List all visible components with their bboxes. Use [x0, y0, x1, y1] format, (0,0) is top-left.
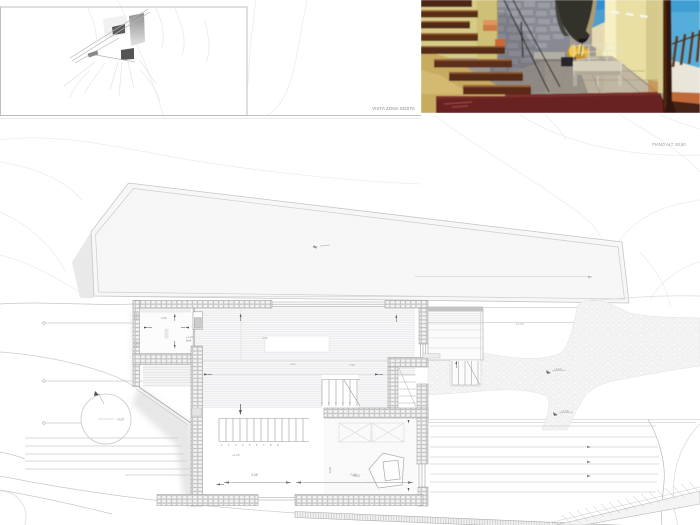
- svg-text:B+B: B+B: [186, 339, 191, 343]
- svg-text:3,05: 3,05: [251, 473, 258, 477]
- svg-text:0,30: 0,30: [328, 467, 332, 473]
- svg-text:+1,60: +1,60: [561, 409, 569, 413]
- svg-text:VISTA ZONA SOSTA: VISTA ZONA SOSTA: [372, 106, 416, 111]
- svg-text:7,04: 7,04: [349, 363, 355, 367]
- svg-text:13,05: 13,05: [516, 322, 524, 326]
- svg-text:7,04: 7,04: [350, 473, 357, 477]
- svg-text:sala: sala: [290, 362, 296, 366]
- svg-text:+3,20: +3,20: [116, 418, 124, 422]
- svg-text:2,95: 2,95: [161, 316, 167, 320]
- svg-text:+3,20: +3,20: [554, 367, 562, 371]
- svg-text:PIANO ALT. 93,50: PIANO ALT. 93,50: [652, 142, 686, 147]
- svg-text:4,35: 4,35: [262, 336, 268, 340]
- svg-text:+2,60: +2,60: [232, 453, 240, 457]
